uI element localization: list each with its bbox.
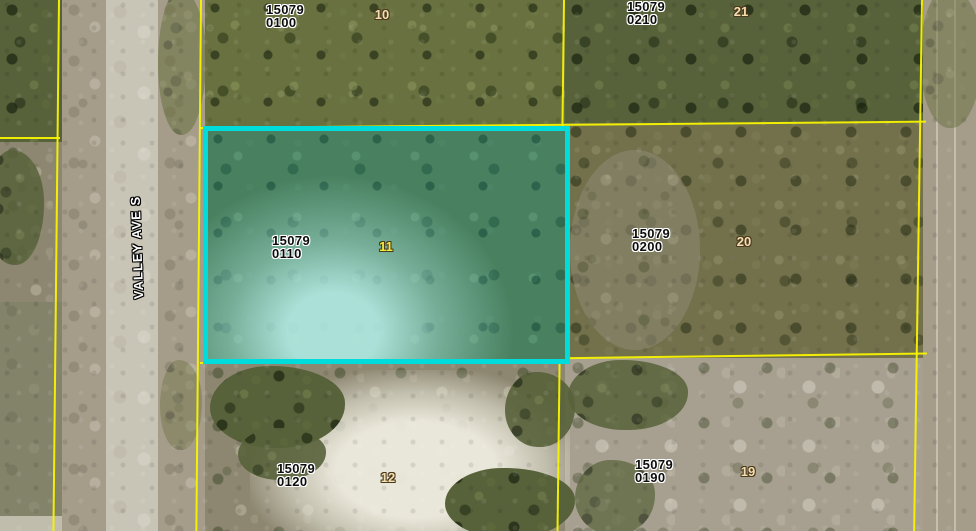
vegetation-patch <box>920 0 976 128</box>
parcel-id-line2: 0100 <box>266 15 297 30</box>
bush-cluster <box>568 360 688 430</box>
parcel-id-line2: 0190 <box>635 470 666 485</box>
parcel-id-label: 150790120 <box>277 462 315 488</box>
lot-number: 21 <box>728 4 754 19</box>
road-shoulder-left <box>62 0 106 531</box>
parcel-id-label: 150790110 <box>272 234 310 260</box>
lot-number: 19 <box>735 464 761 479</box>
parcel-id-line2: 0110 <box>272 246 302 261</box>
parcel-id-label: 150790190 <box>635 458 673 484</box>
aerial-parcel-map[interactable]: 150790100 150790210 150790110 150790200 … <box>0 0 976 531</box>
lot-number: 20 <box>731 234 757 249</box>
lot-number: 12 <box>375 470 401 485</box>
west-vegetation-region <box>0 0 62 142</box>
parcel-id-label: 150790200 <box>632 227 670 253</box>
parcel-id-line2: 0210 <box>627 12 658 27</box>
parcel-boundary-line-west-stub <box>0 137 60 139</box>
parcel-id-line2: 0200 <box>632 239 663 254</box>
parcel-id-label: 150790100 <box>266 3 304 29</box>
parcel-id-line2: 0120 <box>277 474 308 489</box>
bush-cluster <box>505 372 575 447</box>
parcel-id-label: 150790210 <box>627 0 665 26</box>
lot-number: 10 <box>369 7 395 22</box>
lot-number-selected: 11 <box>373 239 399 254</box>
bush-cluster <box>445 468 575 531</box>
